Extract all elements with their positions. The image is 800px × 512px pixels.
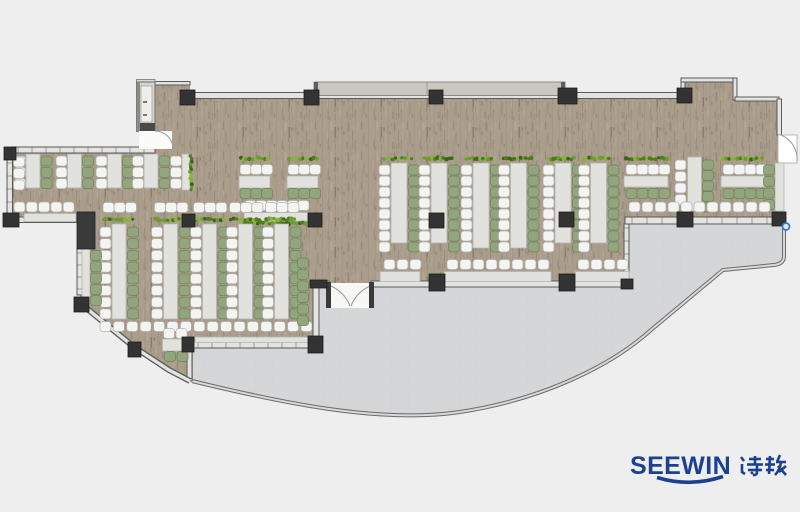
svg-text:SEEWIN: SEEWIN — [630, 452, 731, 480]
